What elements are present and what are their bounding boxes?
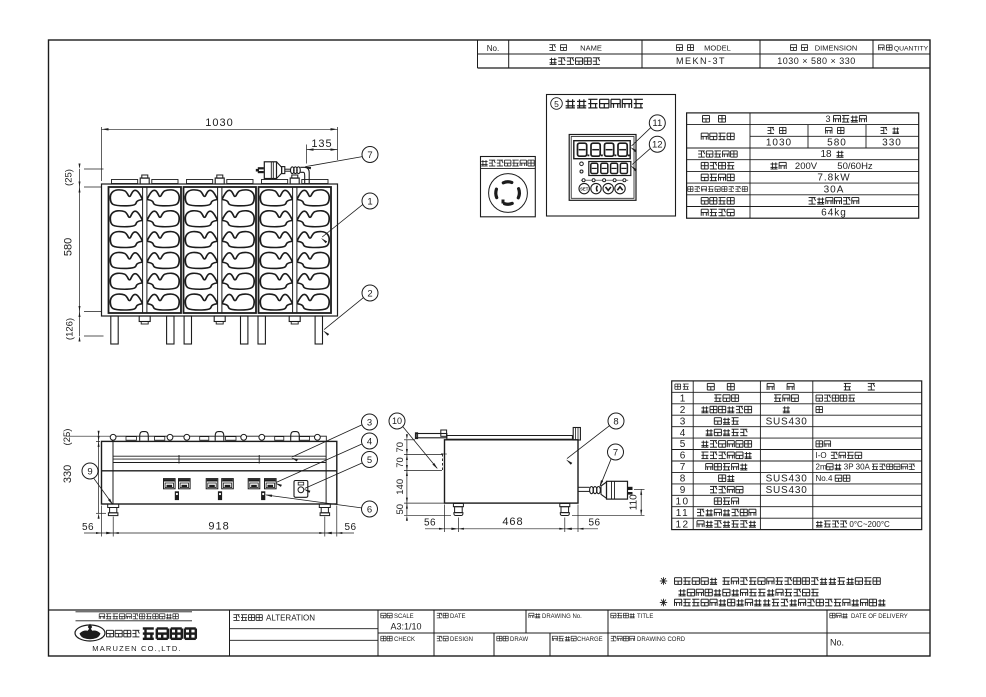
svg-text:SUS430: SUS430 xyxy=(766,485,808,496)
svg-text:5: 5 xyxy=(554,99,559,109)
svg-text:MEKN-3T: MEKN-3T xyxy=(676,56,726,66)
svg-text:1030: 1030 xyxy=(766,138,792,149)
svg-text:3: 3 xyxy=(825,114,830,124)
svg-text:7.8kW: 7.8kW xyxy=(817,173,850,184)
svg-text:(126): (126) xyxy=(65,318,76,340)
svg-text:CHECK: CHECK xyxy=(394,637,415,643)
svg-text:7: 7 xyxy=(613,447,618,458)
svg-text:NAME: NAME xyxy=(580,43,602,52)
svg-text:MARUZEN CO.,LTD.: MARUZEN CO.,LTD. xyxy=(92,644,181,653)
svg-text:330: 330 xyxy=(62,465,74,483)
svg-text:140: 140 xyxy=(395,479,406,495)
svg-text:468: 468 xyxy=(502,516,523,528)
svg-text:580: 580 xyxy=(63,238,75,256)
svg-text:1: 1 xyxy=(680,393,686,404)
svg-text:SUS430: SUS430 xyxy=(766,474,808,485)
svg-text:18: 18 xyxy=(820,149,832,160)
svg-text:135: 135 xyxy=(311,138,332,150)
svg-text:12: 12 xyxy=(675,519,689,530)
svg-text:DATE: DATE xyxy=(450,614,466,620)
svg-text:11: 11 xyxy=(652,118,662,129)
svg-text:6: 6 xyxy=(367,504,372,515)
svg-text:9: 9 xyxy=(87,466,92,477)
svg-text:0°C~200°C: 0°C~200°C xyxy=(849,520,890,529)
svg-text:2m: 2m xyxy=(816,463,827,472)
svg-text:2: 2 xyxy=(680,405,686,416)
svg-text:70: 70 xyxy=(395,442,406,453)
svg-text:(25): (25) xyxy=(62,429,73,446)
svg-text:330: 330 xyxy=(882,138,902,149)
svg-text:3: 3 xyxy=(367,417,372,428)
svg-text:5: 5 xyxy=(680,439,686,450)
svg-text:No.4: No.4 xyxy=(816,474,833,483)
svg-text:8: 8 xyxy=(613,416,618,427)
svg-text:56: 56 xyxy=(82,522,94,533)
svg-text:DIMENSION: DIMENSION xyxy=(815,43,858,52)
svg-text:3: 3 xyxy=(680,416,686,427)
svg-text:MODEL: MODEL xyxy=(704,43,731,52)
svg-text:SET: SET xyxy=(580,186,589,191)
svg-text:1: 1 xyxy=(367,196,372,207)
svg-text:TITLE: TITLE xyxy=(637,614,653,620)
svg-text:50: 50 xyxy=(395,504,406,515)
svg-text:DRAW: DRAW xyxy=(510,637,528,643)
svg-text:4: 4 xyxy=(367,436,372,447)
svg-text:3P 30A: 3P 30A xyxy=(844,463,871,472)
svg-text:ALTERATION: ALTERATION xyxy=(266,613,315,622)
svg-text:110: 110 xyxy=(629,494,640,510)
svg-text:6: 6 xyxy=(680,451,686,462)
svg-text:DRAWING CORD: DRAWING CORD xyxy=(637,637,686,643)
svg-text:10: 10 xyxy=(675,496,689,507)
svg-text:1030: 1030 xyxy=(205,117,233,129)
svg-text:I-O: I-O xyxy=(816,451,827,460)
svg-text:7: 7 xyxy=(367,150,372,161)
svg-text:SCALE: SCALE xyxy=(394,614,414,620)
svg-text:7: 7 xyxy=(680,462,686,473)
svg-text:DATE OF DELIVERY: DATE OF DELIVERY xyxy=(851,614,908,620)
svg-text:11: 11 xyxy=(676,508,689,519)
svg-text:30A: 30A xyxy=(824,184,845,195)
svg-text:8: 8 xyxy=(680,474,686,485)
svg-text:QUANTITY: QUANTITY xyxy=(894,45,929,52)
svg-text:12: 12 xyxy=(652,140,663,151)
svg-text:56: 56 xyxy=(588,518,600,529)
svg-text:56: 56 xyxy=(344,522,356,533)
svg-text:(25): (25) xyxy=(64,169,75,186)
svg-text:580: 580 xyxy=(827,138,847,149)
svg-text:9: 9 xyxy=(680,485,686,496)
svg-text:2: 2 xyxy=(367,288,372,299)
svg-text:200V: 200V xyxy=(795,161,818,172)
svg-text:SUS430: SUS430 xyxy=(766,416,808,427)
svg-text:5: 5 xyxy=(367,455,372,466)
svg-text:10: 10 xyxy=(392,416,402,426)
svg-text:64kg: 64kg xyxy=(821,208,847,219)
svg-text:56: 56 xyxy=(424,518,436,529)
svg-text:A3:1/10: A3:1/10 xyxy=(390,622,421,632)
svg-text:DRAWING No.: DRAWING No. xyxy=(542,614,582,620)
svg-text:70: 70 xyxy=(395,457,406,468)
svg-text:918: 918 xyxy=(208,521,229,533)
svg-text:No.: No. xyxy=(487,44,499,53)
svg-text:4: 4 xyxy=(680,428,686,439)
svg-text:CHARGE: CHARGE xyxy=(577,637,603,643)
svg-text:1030 × 580 × 330: 1030 × 580 × 330 xyxy=(777,56,856,66)
svg-text:No.: No. xyxy=(830,638,844,648)
svg-text:50/60Hz: 50/60Hz xyxy=(837,161,873,172)
svg-text:DESIGN: DESIGN xyxy=(450,637,473,643)
